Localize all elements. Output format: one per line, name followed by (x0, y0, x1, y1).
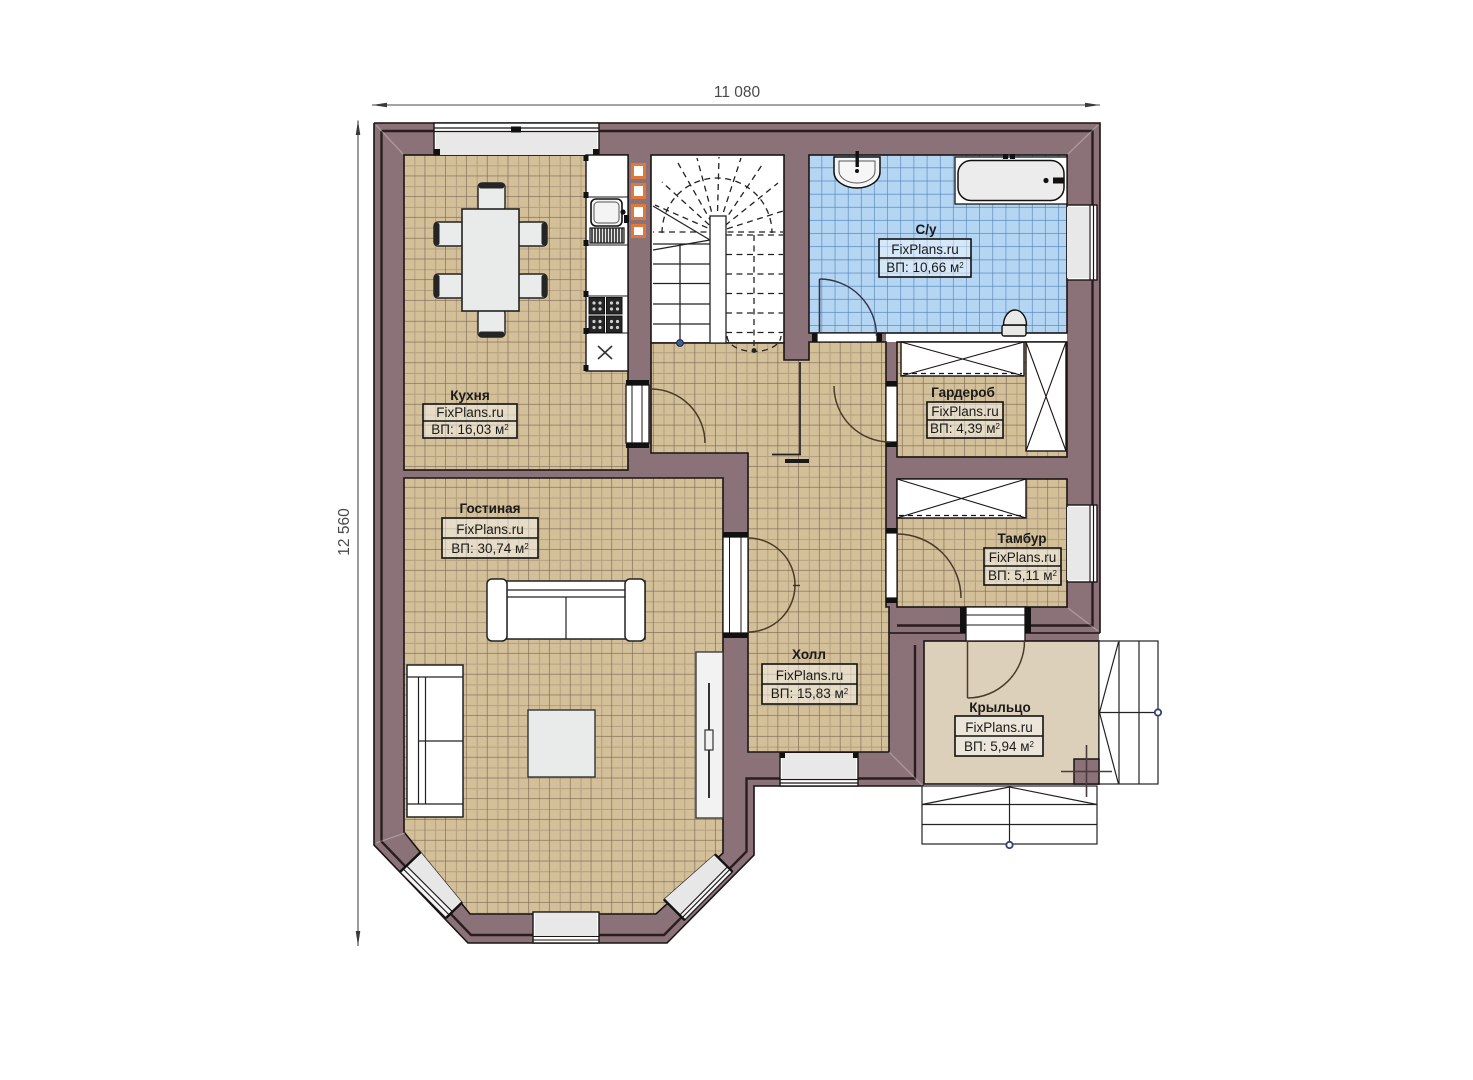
svg-text:ВП: 5,94 м2: ВП: 5,94 м2 (964, 739, 1035, 754)
svg-text:FixPlans.ru: FixPlans.ru (931, 404, 999, 419)
svg-text:FixPlans.ru: FixPlans.ru (456, 522, 524, 537)
svg-text:ВП: 16,03 м2: ВП: 16,03 м2 (431, 422, 509, 437)
svg-text:Тамбур: Тамбур (998, 531, 1047, 546)
svg-text:ВП: 30,74 м2: ВП: 30,74 м2 (451, 541, 529, 556)
svg-text:FixPlans.ru: FixPlans.ru (776, 668, 844, 683)
svg-text:ВП: 5,11 м2: ВП: 5,11 м2 (988, 568, 1058, 583)
svg-text:FixPlans.ru: FixPlans.ru (965, 720, 1033, 735)
svg-text:Гардероб: Гардероб (931, 385, 995, 400)
svg-text:ВП: 10,66 м2: ВП: 10,66 м2 (886, 260, 964, 275)
svg-text:Холл: Холл (792, 647, 826, 662)
svg-text:12 560: 12 560 (336, 508, 353, 556)
svg-text:Гостиная: Гостиная (459, 501, 520, 516)
svg-text:Крыльцо: Крыльцо (969, 700, 1030, 715)
svg-text:С/у: С/у (915, 222, 937, 237)
svg-text:FixPlans.ru: FixPlans.ru (436, 405, 504, 420)
svg-text:Кухня: Кухня (450, 388, 489, 403)
svg-text:FixPlans.ru: FixPlans.ru (891, 242, 959, 257)
svg-text:FixPlans.ru: FixPlans.ru (989, 550, 1057, 565)
svg-text:ВП: 4,39 м2: ВП: 4,39 м2 (930, 421, 1001, 436)
svg-text:ВП: 15,83 м2: ВП: 15,83 м2 (771, 686, 849, 701)
svg-text:11 080: 11 080 (714, 84, 761, 101)
